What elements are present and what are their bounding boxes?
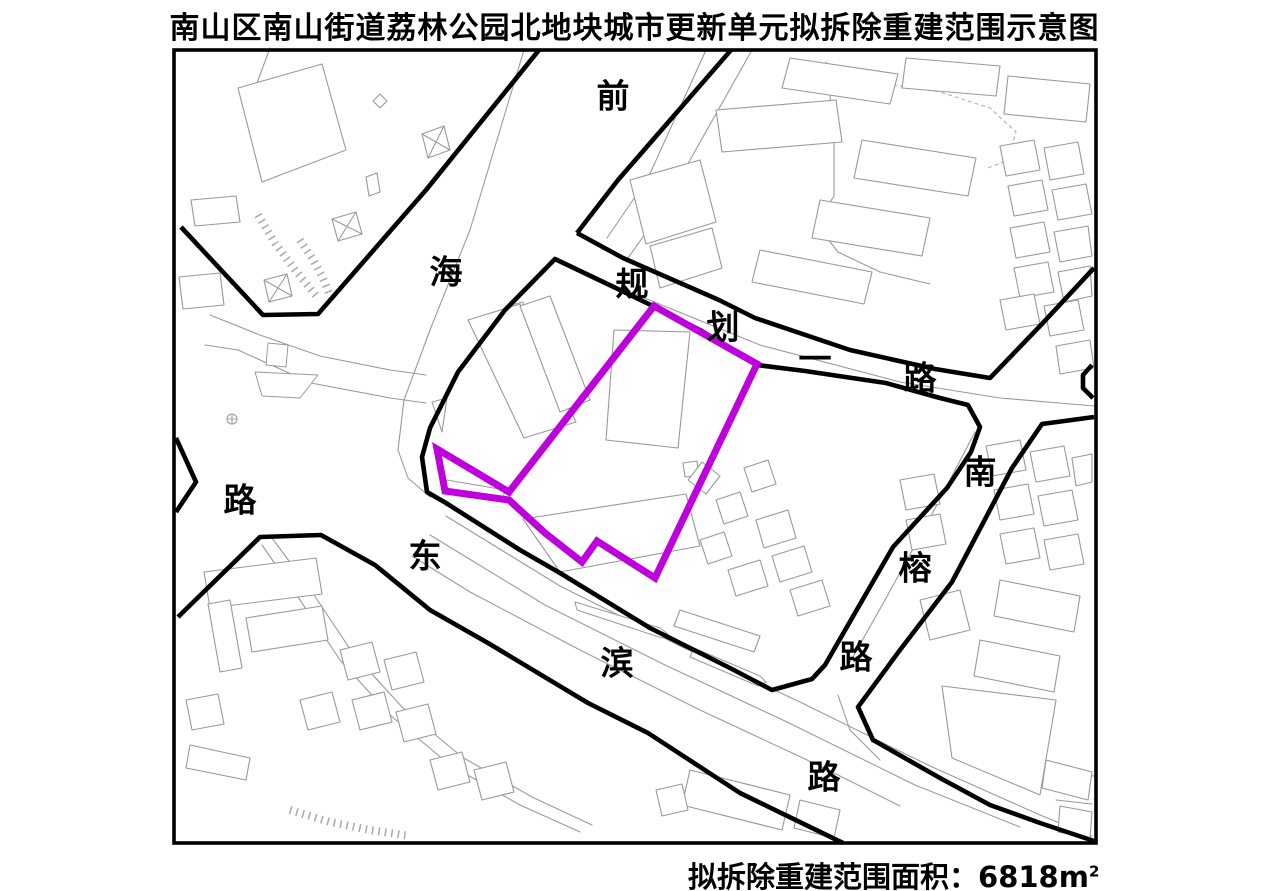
road-label-dongbin-2: 滨 — [601, 644, 634, 683]
road-label-guihua-2: 划 — [707, 308, 740, 347]
east-border-chevron — [1083, 365, 1093, 398]
road-label-qianhai-1: 前 — [597, 77, 630, 116]
qianhai-west-edge — [181, 50, 539, 315]
map-canvas: 前海路规划一路南榕路东滨路 — [0, 0, 1269, 891]
road-label-dongbin-1: 东 — [409, 537, 442, 576]
road-label-qianhai-3: 路 — [224, 481, 258, 520]
layer-hatch-bands — [258, 215, 410, 836]
area-caption-sup: 2 — [1089, 862, 1099, 880]
area-caption-unit: m — [1059, 860, 1089, 891]
road-label-dongbin-3: 路 — [808, 758, 842, 797]
road-label-guihua-4: 路 — [904, 359, 938, 398]
road-label-guihua-1: 规 — [616, 265, 649, 304]
west-border-chevron — [176, 438, 196, 512]
road-label-nanrong-2: 榕 — [899, 549, 932, 588]
area-caption: 拟拆除重建范围面积：6818m2 — [688, 854, 1099, 891]
road-label-nanrong-1: 南 — [964, 453, 997, 492]
map-page: 南山区南山街道荔林公园北地块城市更新单元拟拆除重建范围示意图 前海路规划一路南榕… — [0, 0, 1269, 891]
area-caption-value: 6818 — [978, 860, 1059, 891]
layer-buildings — [179, 58, 1094, 838]
road-label-qianhai-2: 海 — [430, 253, 463, 292]
area-caption-label: 拟拆除重建范围面积： — [688, 860, 978, 891]
road-label-guihua-3: 一 — [799, 340, 832, 379]
road-label-nanrong-3: 路 — [840, 638, 874, 677]
